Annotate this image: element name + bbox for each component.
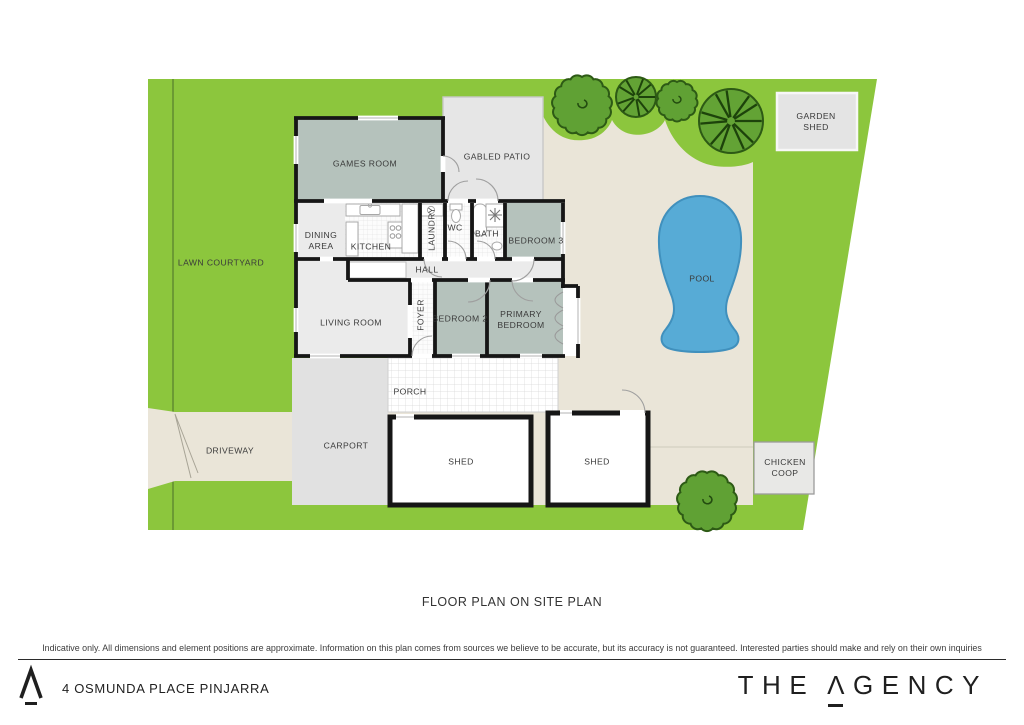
site-plan-canvas <box>0 0 1024 725</box>
label-garden-shed: GARDEN SHED <box>787 111 845 133</box>
floor-plan-page: LAWN COURTYARD DRIVEWAY GAMES ROOM GABLE… <box>0 0 1024 725</box>
label-bedroom-3: BEDROOM 3 <box>508 235 563 246</box>
label-porch: PORCH <box>393 386 426 397</box>
brand-word-gency: GENCY <box>853 670 988 700</box>
label-driveway: DRIVEWAY <box>206 445 254 456</box>
label-dining-area: DINING AREA <box>298 230 344 252</box>
page-title: FLOOR PLAN ON SITE PLAN <box>0 595 1024 609</box>
footer-divider <box>18 659 1006 660</box>
label-hall: HALL <box>415 264 438 275</box>
label-shed-left: SHED <box>448 456 473 467</box>
gabled-patio-structure <box>443 97 543 201</box>
label-foyer: FOYER <box>415 299 426 331</box>
disclaimer-text: Indicative only. All dimensions and elem… <box>0 643 1024 653</box>
label-pool: POOL <box>689 273 714 284</box>
shower-rose-icon <box>488 208 502 222</box>
label-games-room: GAMES ROOM <box>333 158 397 169</box>
label-shed-right: SHED <box>584 456 609 467</box>
label-gabled-patio: GABLED PATIO <box>464 151 531 162</box>
tree-icon <box>699 89 763 153</box>
label-laundry: LAUNDRY <box>426 207 437 251</box>
label-bedroom-2: BEDROOM 2 <box>432 313 487 324</box>
tree-icon <box>552 75 612 135</box>
brand-word-the: THE <box>738 670 816 700</box>
label-chicken-coop: CHICKEN COOP <box>750 457 820 479</box>
tree-icon <box>677 471 737 531</box>
tree-icon <box>616 77 656 117</box>
porch-structure <box>388 358 558 412</box>
property-address: 4 OSMUNDA PLACE PINJARRA <box>62 681 270 696</box>
label-primary-bedroom: PRIMARY BEDROOM <box>490 309 552 331</box>
wc-fixtures <box>450 204 462 223</box>
label-carport: CARPORT <box>324 440 369 451</box>
carport-structure <box>292 358 388 505</box>
brand-a-underscore <box>828 704 843 707</box>
agency-logo: THEΛGENCY <box>738 670 988 701</box>
label-wc: WC <box>447 222 462 233</box>
label-kitchen: KITCHEN <box>351 241 392 252</box>
label-living-room: LIVING ROOM <box>320 317 382 328</box>
tree-icon <box>656 81 697 122</box>
label-bath: BATH <box>475 228 499 239</box>
brand-letter-a: Λ <box>827 670 853 701</box>
label-lawn-courtyard: LAWN COURTYARD <box>178 257 264 268</box>
agency-mark-icon <box>17 664 45 708</box>
